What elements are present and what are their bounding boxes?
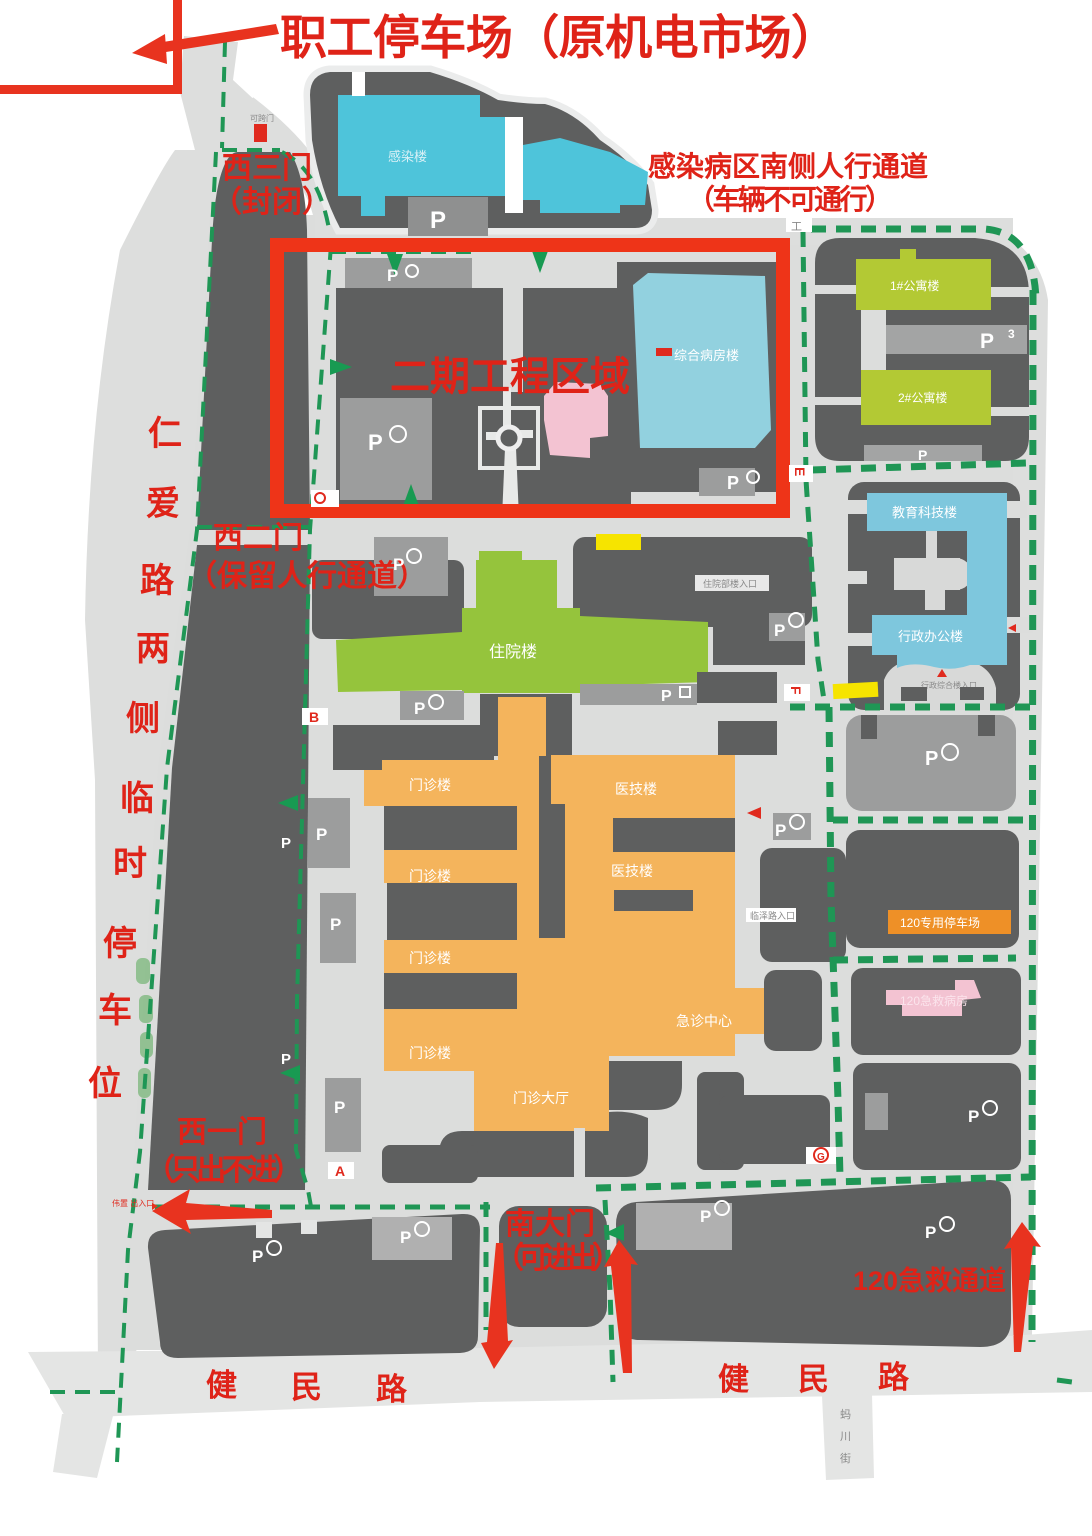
svg-text:伟置 出入口: 伟置 出入口 [112, 1198, 154, 1208]
svg-text:（封闭）: （封闭） [212, 185, 332, 219]
svg-text:两: 两 [136, 630, 170, 668]
svg-text:P: P [400, 1228, 411, 1247]
svg-text:2#公寓楼: 2#公寓楼 [898, 390, 947, 405]
svg-text:P: P [334, 1098, 345, 1117]
svg-text:P: P [368, 430, 383, 455]
svg-text:P: P [281, 1051, 291, 1068]
svg-text:（车辆不可通行）: （车辆不可通行） [687, 183, 893, 215]
svg-text:P: P [252, 1247, 263, 1266]
svg-text:川: 川 [840, 1431, 851, 1443]
svg-text:临: 临 [120, 780, 154, 818]
svg-text:P: P [980, 330, 994, 353]
svg-text:P: P [774, 621, 785, 640]
svg-text:P: P [330, 915, 341, 934]
svg-text:二期工程区域: 二期工程区域 [390, 355, 630, 399]
svg-text:120急救通道: 120急救通道 [853, 1265, 1006, 1296]
svg-text:门诊楼: 门诊楼 [409, 777, 451, 793]
svg-text:可跨门: 可跨门 [250, 113, 274, 123]
svg-text:侧: 侧 [126, 700, 160, 738]
svg-text:门诊楼: 门诊楼 [409, 868, 451, 884]
svg-text:P: P [281, 835, 291, 852]
svg-text:住院部楼入口: 住院部楼入口 [703, 578, 757, 589]
svg-text:感染病区南侧人行通道: 感染病区南侧人行通道 [648, 150, 928, 182]
svg-text:医技楼: 医技楼 [615, 781, 657, 797]
svg-text:P: P [925, 1223, 936, 1242]
svg-text:西三门: 西三门 [222, 152, 312, 185]
svg-text:街: 街 [840, 1451, 851, 1465]
svg-text:P: P [430, 207, 446, 234]
svg-text:P: P [387, 266, 398, 285]
svg-text:路: 路 [878, 1360, 910, 1395]
svg-text:P: P [661, 688, 672, 705]
svg-text:位: 位 [88, 1065, 122, 1103]
svg-text:南大门: 南大门 [505, 1208, 595, 1241]
svg-text:P: P [775, 821, 786, 840]
svg-text:A: A [335, 1163, 345, 1179]
svg-text:（只出不进）: （只出不进） [145, 1153, 303, 1187]
svg-text:车: 车 [98, 992, 132, 1030]
svg-text:健: 健 [718, 1362, 749, 1397]
svg-text:职工停车场（原机电市场）: 职工停车场（原机电市场） [280, 11, 838, 64]
svg-text:P: P [700, 1207, 711, 1226]
svg-text:爱: 爱 [146, 485, 180, 523]
svg-text:民: 民 [798, 1362, 829, 1397]
svg-text:教育科技楼: 教育科技楼 [892, 505, 957, 520]
svg-text:西一门: 西一门 [177, 1116, 267, 1149]
svg-text:健: 健 [206, 1368, 237, 1403]
svg-text:F: F [788, 686, 804, 695]
svg-text:工: 工 [791, 221, 802, 233]
svg-text:时: 时 [113, 845, 147, 883]
svg-text:P: P [414, 699, 425, 718]
svg-text:行政办公楼: 行政办公楼 [898, 629, 963, 644]
svg-text:P: P [316, 825, 327, 844]
svg-text:感染楼: 感染楼 [388, 149, 427, 164]
svg-text:120专用停车场: 120专用停车场 [900, 915, 980, 930]
svg-text:E: E [792, 467, 808, 476]
svg-text:（可进出）: （可进出） [494, 1241, 622, 1275]
svg-text:120急救病房: 120急救病房 [900, 993, 968, 1008]
svg-text:蚂: 蚂 [840, 1408, 851, 1421]
svg-text:P: P [727, 473, 739, 493]
svg-text:临泽路入口: 临泽路入口 [750, 910, 795, 921]
svg-text:西二门: 西二门 [213, 522, 303, 555]
svg-text:民: 民 [291, 1370, 322, 1405]
svg-text:住院楼: 住院楼 [489, 643, 537, 661]
svg-text:B: B [309, 709, 319, 725]
svg-text:P: P [968, 1107, 979, 1126]
svg-text:路: 路 [376, 1372, 408, 1407]
svg-text:门诊楼: 门诊楼 [409, 1045, 451, 1061]
svg-text:综合病房楼: 综合病房楼 [674, 348, 739, 363]
svg-text:P: P [925, 748, 938, 770]
svg-text:仁: 仁 [148, 415, 182, 453]
svg-text:（保留人行通道）: （保留人行通道） [187, 559, 427, 593]
svg-text:1#公寓楼: 1#公寓楼 [890, 278, 939, 293]
svg-text:门诊大厅: 门诊大厅 [513, 1090, 569, 1106]
svg-text:G: G [817, 1152, 825, 1163]
svg-text:P: P [918, 447, 927, 463]
svg-text:3: 3 [1008, 327, 1015, 341]
svg-text:门诊楼: 门诊楼 [409, 950, 451, 966]
svg-text:P: P [393, 555, 404, 574]
svg-text:停: 停 [103, 925, 137, 963]
svg-text:路: 路 [140, 562, 175, 600]
svg-text:医技楼: 医技楼 [611, 863, 653, 879]
svg-text:急诊中心: 急诊中心 [676, 1013, 732, 1029]
